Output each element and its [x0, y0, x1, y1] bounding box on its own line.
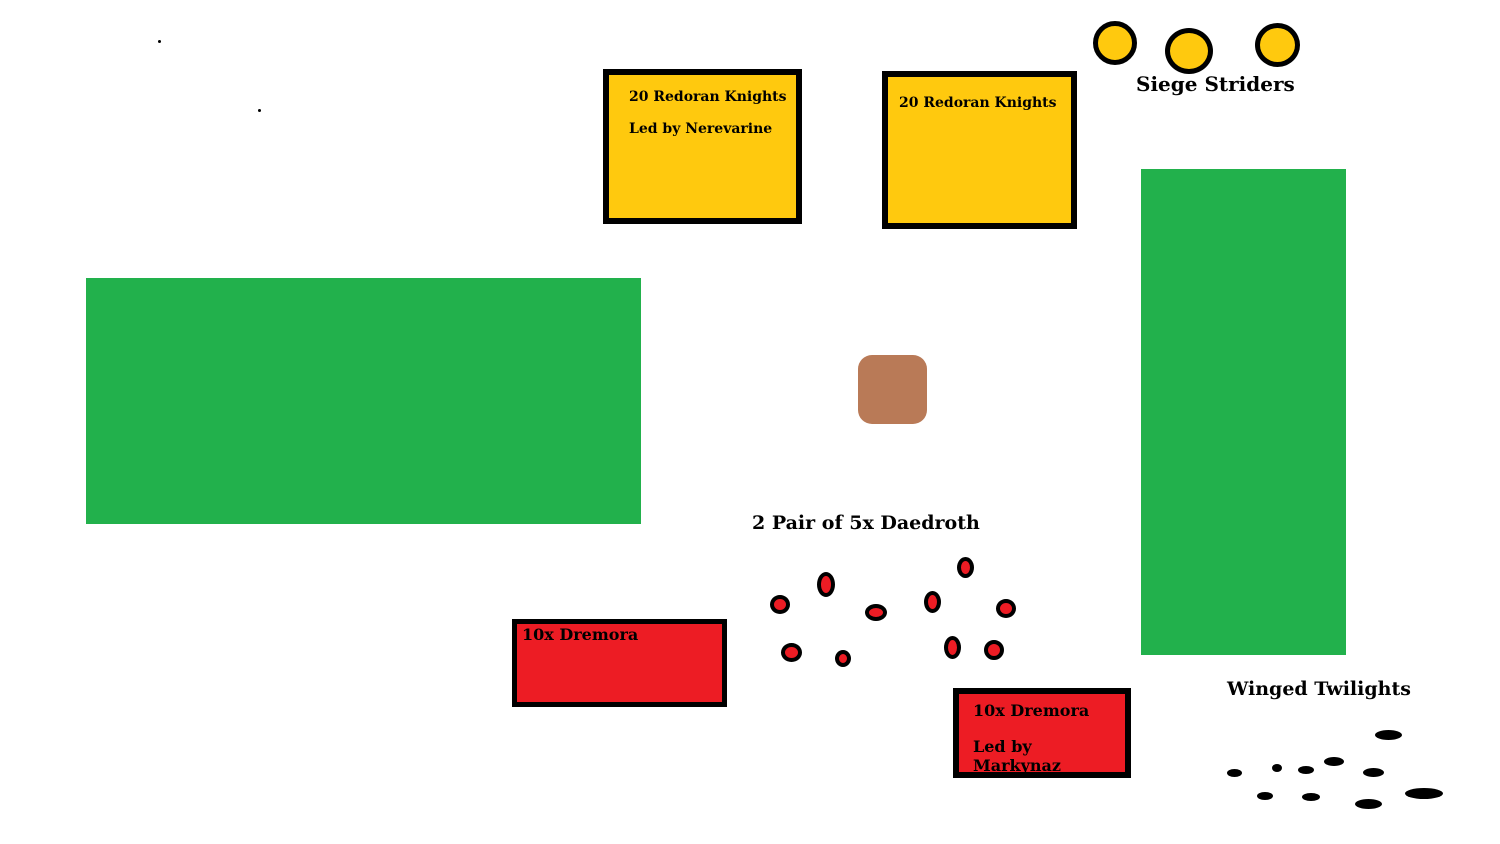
siege-striders-marker	[1093, 21, 1137, 65]
winged-twilights-marker	[1302, 793, 1320, 801]
redoran-knights-2-box: 20 Redoran Knights	[882, 71, 1077, 229]
daedroth-marker	[835, 650, 851, 667]
daedroth-marker	[924, 591, 941, 613]
winged-twilights-marker	[1375, 730, 1402, 740]
winged-twilights-marker	[1227, 769, 1242, 777]
daedroth-marker	[865, 604, 887, 621]
daedroth-marker	[770, 595, 790, 614]
stray-dots-marker	[258, 109, 261, 112]
dremora-2-label: 10x Dremora	[973, 702, 1121, 720]
stray-dots-marker	[158, 40, 161, 43]
daedroth-label: 2 Pair of 5x Daedroth	[752, 512, 980, 534]
winged-twilights-marker	[1363, 768, 1384, 777]
daedroth-marker	[984, 640, 1004, 660]
brown-structure	[858, 355, 927, 424]
winged-twilights-marker	[1257, 792, 1273, 800]
winged-twilights-marker	[1324, 757, 1344, 766]
winged-twilights-marker	[1355, 799, 1382, 809]
winged-twilights-marker	[1272, 764, 1282, 772]
winged-twilights-marker	[1405, 788, 1443, 799]
winged-twilights-label: Winged Twilights	[1227, 678, 1411, 700]
redoran-knights-1-label: 20 Redoran Knights	[629, 89, 790, 105]
daedroth-marker	[817, 572, 835, 597]
siege-striders-marker	[1165, 28, 1213, 74]
redoran-knights-1-box: 20 Redoran Knights Led by Nerevarine	[603, 69, 802, 224]
dremora-1-box: 10x Dremora	[512, 619, 727, 707]
daedroth-marker	[957, 557, 974, 578]
daedroth-marker	[944, 636, 961, 659]
daedroth-marker	[781, 643, 802, 662]
dremora-2-box: 10x Dremora Led by Markynaz	[953, 688, 1131, 778]
dremora-1-label: 10x Dremora	[522, 626, 718, 644]
green-terrain-right	[1141, 169, 1346, 655]
siege-striders-label: Siege Striders	[1136, 72, 1295, 96]
redoran-knights-1-leader: Led by Nerevarine	[629, 121, 790, 137]
green-terrain-left	[86, 278, 641, 524]
dremora-2-leader: Led by Markynaz	[973, 738, 1121, 775]
redoran-knights-2-label: 20 Redoran Knights	[899, 95, 1065, 111]
siege-striders-marker	[1255, 23, 1300, 67]
winged-twilights-marker	[1298, 766, 1314, 774]
daedroth-marker	[996, 599, 1016, 618]
battle-plan-canvas: 20 Redoran Knights Led by Nerevarine 20 …	[0, 0, 1500, 844]
